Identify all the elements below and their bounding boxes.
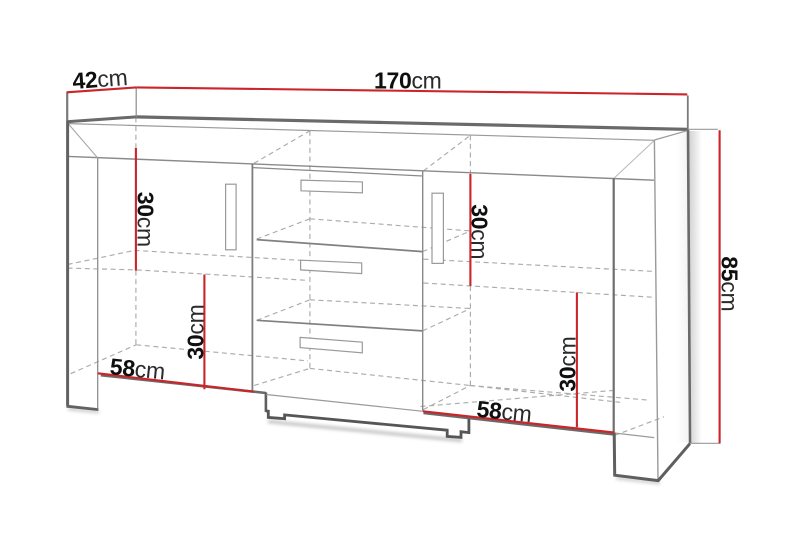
- svg-text:85cm: 85cm: [716, 256, 742, 311]
- svg-text:58cm: 58cm: [109, 353, 166, 384]
- svg-text:170cm: 170cm: [374, 67, 442, 93]
- svg-text:30cm: 30cm: [467, 204, 493, 259]
- svg-text:58cm: 58cm: [475, 396, 532, 427]
- svg-text:42cm: 42cm: [71, 64, 128, 94]
- svg-text:30cm: 30cm: [555, 337, 581, 392]
- svg-text:30cm: 30cm: [132, 192, 158, 247]
- svg-text:30cm: 30cm: [182, 305, 208, 360]
